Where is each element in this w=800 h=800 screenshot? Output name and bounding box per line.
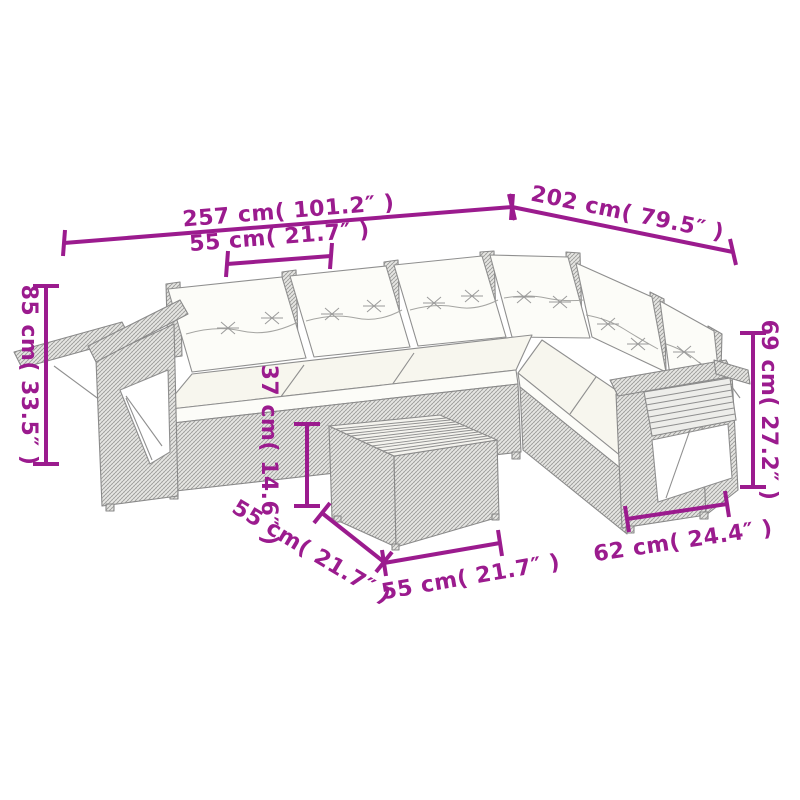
sofa-sketch — [14, 251, 750, 550]
dimension-arm-height: 69 cm( 27.2″ ) — [740, 320, 781, 501]
total-depth-label: 202 cm( 79.5″ ) — [529, 182, 727, 246]
product-line-drawing: 257 cm( 101.2″ ) 202 cm( 79.5″ ) 55 cm( … — [0, 0, 800, 800]
dimension-diagram: 257 cm( 101.2″ ) 202 cm( 79.5″ ) 55 cm( … — [0, 0, 800, 800]
dimension-total-depth: 202 cm( 79.5″ ) — [509, 182, 736, 265]
back-height-label: 85 cm( 33.5″ ) — [16, 285, 41, 466]
coffee-table — [329, 415, 499, 550]
arm-height-label: 69 cm( 27.2″ ) — [756, 320, 781, 501]
dimension-back-height: 85 cm( 33.5″ ) — [16, 285, 59, 466]
